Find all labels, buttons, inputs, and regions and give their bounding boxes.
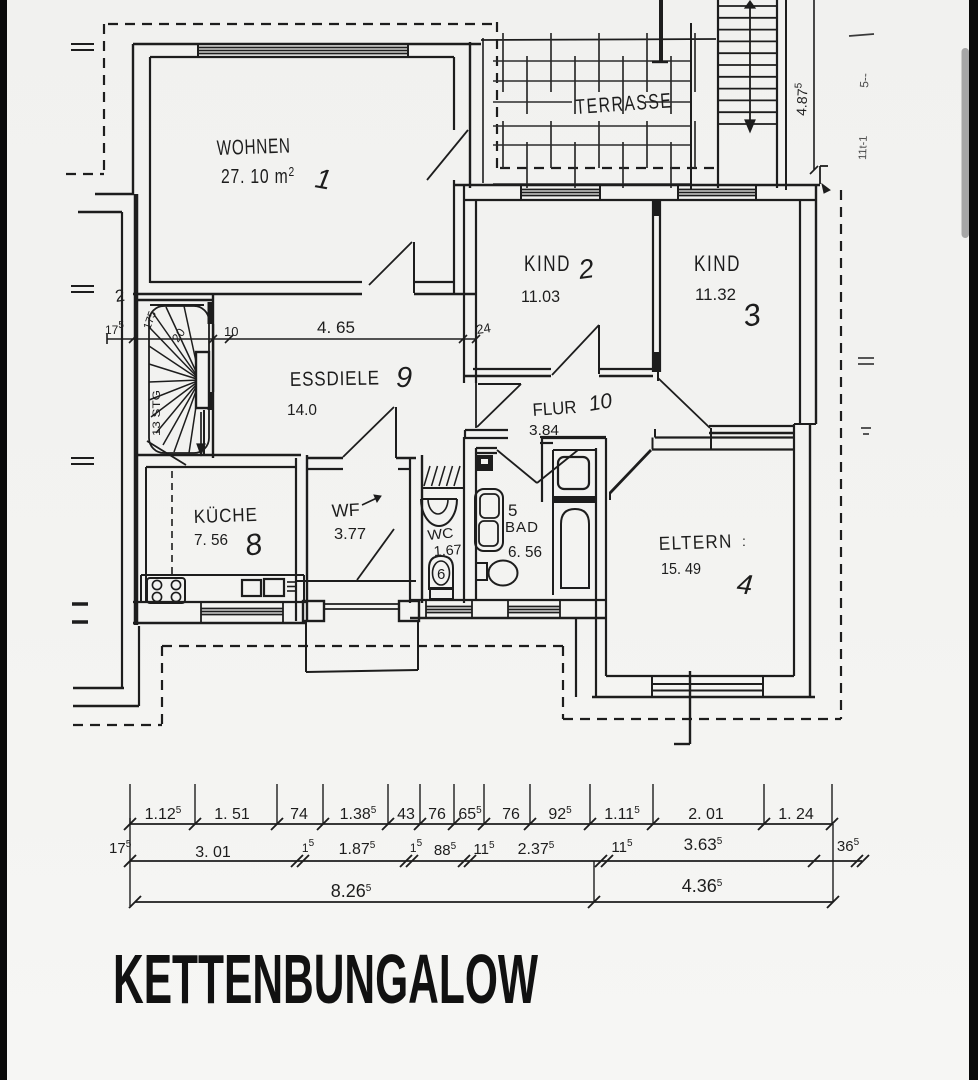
svg-text:KÜCHE: KÜCHE (193, 505, 258, 528)
svg-text:43: 43 (397, 806, 415, 823)
svg-text:BAD: BAD (505, 519, 539, 536)
svg-text:KIND: KIND (694, 251, 741, 276)
svg-text:2. 01: 2. 01 (688, 806, 724, 823)
svg-text:WF: WF (331, 500, 360, 521)
svg-text:10: 10 (224, 324, 238, 339)
svg-text:4: 4 (735, 568, 754, 600)
svg-text:WOHNEN: WOHNEN (216, 134, 291, 160)
svg-text:6. 56: 6. 56 (508, 544, 542, 561)
svg-text:10: 10 (587, 389, 614, 416)
svg-text:WC: WC (427, 524, 455, 543)
svg-text:24: 24 (475, 320, 491, 337)
svg-text:5--: 5-- (857, 73, 872, 89)
svg-text:74: 74 (290, 806, 308, 823)
svg-text:1. 24: 1. 24 (778, 806, 814, 823)
svg-text:6: 6 (437, 566, 445, 583)
svg-text:4. 65: 4. 65 (317, 318, 355, 337)
svg-text:5: 5 (508, 501, 517, 520)
svg-text:9: 9 (396, 362, 412, 394)
svg-text:11.32: 11.32 (695, 285, 736, 304)
svg-text:27. 10 m2: 27. 10 m2 (221, 164, 295, 188)
svg-text:15. 49: 15. 49 (661, 561, 701, 578)
svg-text:KETTENBUNGALOW: KETTENBUNGALOW (113, 940, 538, 1018)
svg-text:13 STG: 13 STG (151, 390, 163, 436)
svg-text:8.265: 8.265 (331, 881, 372, 901)
svg-text:76: 76 (502, 806, 520, 823)
svg-text:ELTERN: ELTERN (658, 531, 733, 555)
svg-text:KIND: KIND (524, 251, 571, 276)
svg-text:76: 76 (428, 806, 446, 823)
svg-text:3.77: 3.77 (334, 526, 366, 543)
svg-text:ESSDIELE: ESSDIELE (290, 367, 380, 391)
svg-text:7. 56: 7. 56 (194, 532, 228, 549)
svg-text:FLUR: FLUR (532, 397, 577, 420)
svg-text:11.03: 11.03 (521, 287, 560, 306)
svg-text:4.365: 4.365 (682, 876, 723, 896)
svg-text:3. 01: 3. 01 (195, 844, 231, 861)
svg-text:14.0: 14.0 (287, 402, 317, 419)
svg-text:11t-1: 11t-1 (857, 135, 870, 160)
svg-text::: : (742, 533, 746, 549)
svg-text:1. 51: 1. 51 (214, 806, 250, 823)
